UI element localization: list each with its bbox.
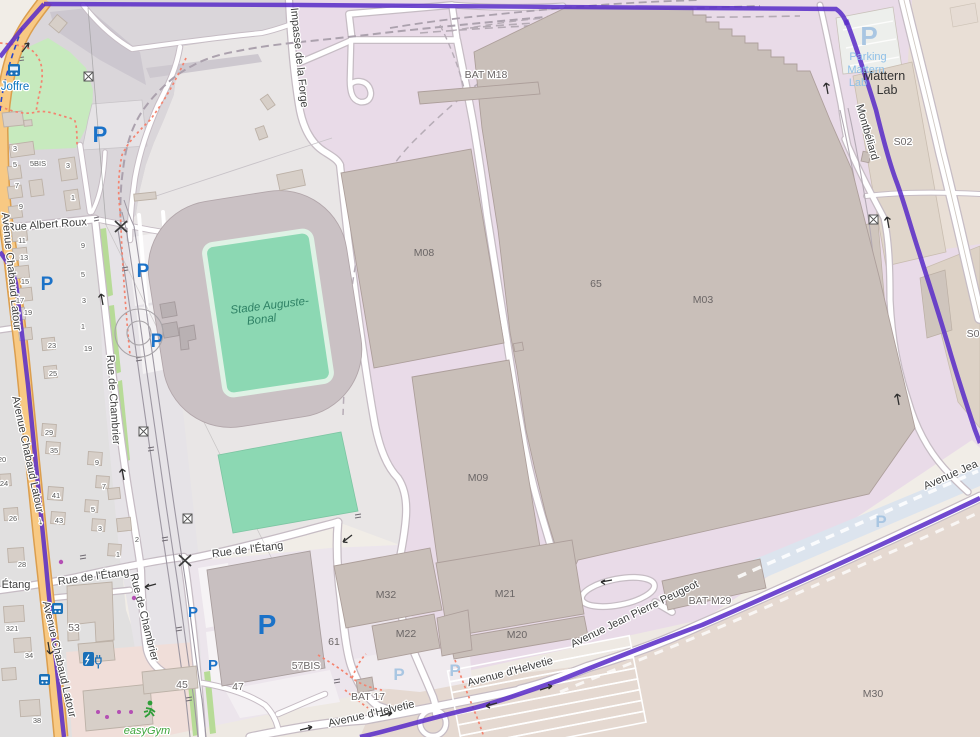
- svg-text:9: 9: [19, 202, 23, 211]
- svg-text:13: 13: [20, 253, 28, 262]
- svg-text:35: 35: [50, 446, 58, 455]
- svg-text:11: 11: [18, 236, 26, 245]
- svg-text:S0: S0: [967, 328, 980, 340]
- svg-text:17: 17: [16, 296, 24, 305]
- svg-text:P: P: [875, 512, 886, 531]
- svg-text:Mattern: Mattern: [847, 64, 884, 76]
- svg-text:P: P: [188, 604, 198, 621]
- svg-text:43: 43: [55, 516, 63, 525]
- svg-text:29: 29: [45, 428, 53, 437]
- svg-text:45: 45: [176, 679, 188, 691]
- svg-text:P: P: [258, 609, 277, 640]
- svg-text:65: 65: [590, 278, 602, 290]
- svg-text:M08: M08: [414, 247, 435, 259]
- svg-text:20: 20: [0, 455, 6, 464]
- svg-text:BAT M18: BAT M18: [465, 69, 508, 81]
- svg-text:19: 19: [24, 308, 32, 317]
- svg-text:47: 47: [232, 681, 244, 693]
- svg-text:1: 1: [81, 322, 85, 331]
- svg-text:BAT 17: BAT 17: [351, 691, 385, 703]
- svg-text:P: P: [208, 657, 218, 674]
- svg-text:BAT M29: BAT M29: [689, 595, 732, 607]
- svg-text:25: 25: [49, 369, 57, 378]
- svg-text:M21: M21: [495, 588, 516, 600]
- svg-text:321: 321: [6, 624, 19, 633]
- svg-text:5: 5: [81, 270, 85, 279]
- svg-text:38: 38: [33, 716, 41, 725]
- svg-text:Joffre: Joffre: [1, 81, 30, 93]
- svg-text:Lab: Lab: [849, 77, 867, 89]
- svg-text:3: 3: [98, 524, 102, 533]
- svg-text:M22: M22: [396, 628, 417, 640]
- svg-text:1: 1: [116, 550, 120, 559]
- svg-text:Parking: Parking: [849, 51, 886, 63]
- svg-text:3: 3: [13, 144, 17, 153]
- svg-text:3: 3: [82, 296, 86, 305]
- svg-text:P: P: [93, 122, 108, 147]
- svg-text:M20: M20: [507, 629, 528, 641]
- svg-text:3: 3: [66, 161, 70, 170]
- svg-text:P: P: [393, 665, 404, 684]
- svg-text:M32: M32: [376, 589, 397, 601]
- svg-text:Lab: Lab: [877, 83, 898, 97]
- svg-text:61: 61: [328, 636, 340, 648]
- svg-text:41: 41: [52, 491, 60, 500]
- svg-text:53: 53: [68, 622, 80, 634]
- svg-text:24: 24: [0, 479, 8, 488]
- svg-text:P: P: [41, 274, 54, 295]
- svg-text:9: 9: [81, 241, 85, 250]
- svg-text:34: 34: [25, 651, 33, 660]
- svg-text:5: 5: [91, 505, 95, 514]
- svg-text:7: 7: [15, 181, 19, 190]
- svg-text:9: 9: [95, 458, 99, 467]
- svg-text:57BIS: 57BIS: [292, 660, 321, 672]
- svg-text:23: 23: [48, 341, 56, 350]
- svg-text:5BIS: 5BIS: [30, 159, 46, 168]
- svg-text:P: P: [449, 661, 460, 680]
- svg-text:2: 2: [135, 535, 139, 544]
- svg-text:M30: M30: [863, 688, 884, 700]
- svg-text:28: 28: [18, 560, 26, 569]
- svg-text:26: 26: [9, 514, 17, 523]
- svg-text:M09: M09: [468, 472, 489, 484]
- svg-text:M03: M03: [693, 294, 714, 306]
- svg-text:1: 1: [71, 193, 75, 202]
- svg-text:19: 19: [84, 344, 92, 353]
- svg-text:7: 7: [102, 482, 106, 491]
- svg-text:5: 5: [13, 160, 17, 169]
- svg-text:P: P: [860, 21, 877, 51]
- svg-text:Étang: Étang: [2, 578, 31, 591]
- svg-text:15: 15: [21, 277, 29, 286]
- svg-text:P: P: [137, 261, 150, 282]
- svg-text:S02: S02: [894, 136, 913, 148]
- svg-text:easyGym: easyGym: [124, 725, 170, 737]
